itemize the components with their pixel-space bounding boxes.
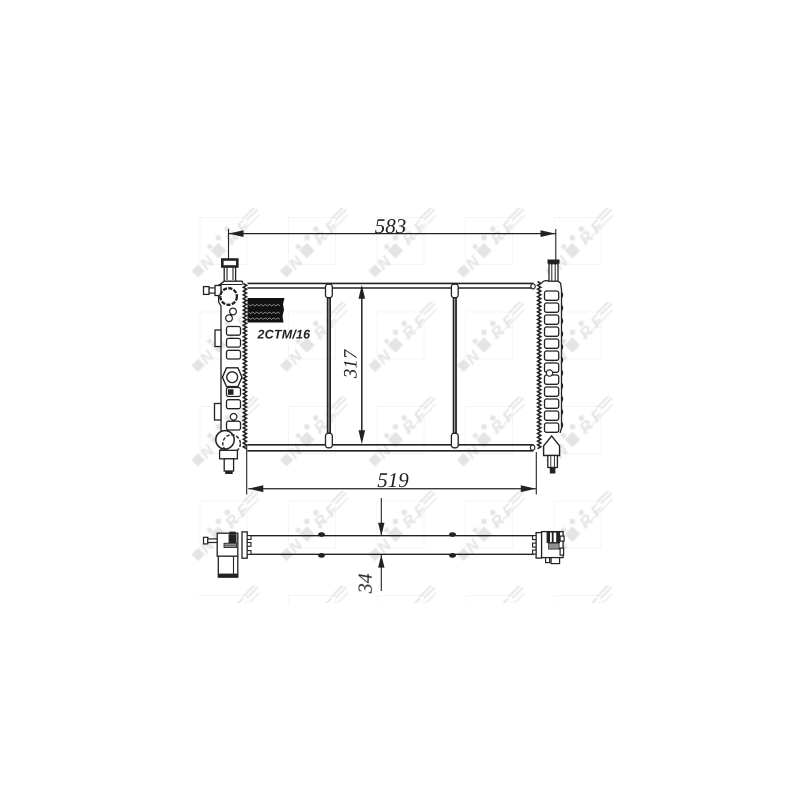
svg-text:519: 519 [377, 468, 409, 492]
svg-text:2CTM/16: 2CTM/16 [257, 328, 312, 342]
svg-text:583: 583 [375, 214, 407, 238]
svg-text:34: 34 [355, 573, 377, 594]
svg-text:317: 317 [341, 348, 362, 379]
